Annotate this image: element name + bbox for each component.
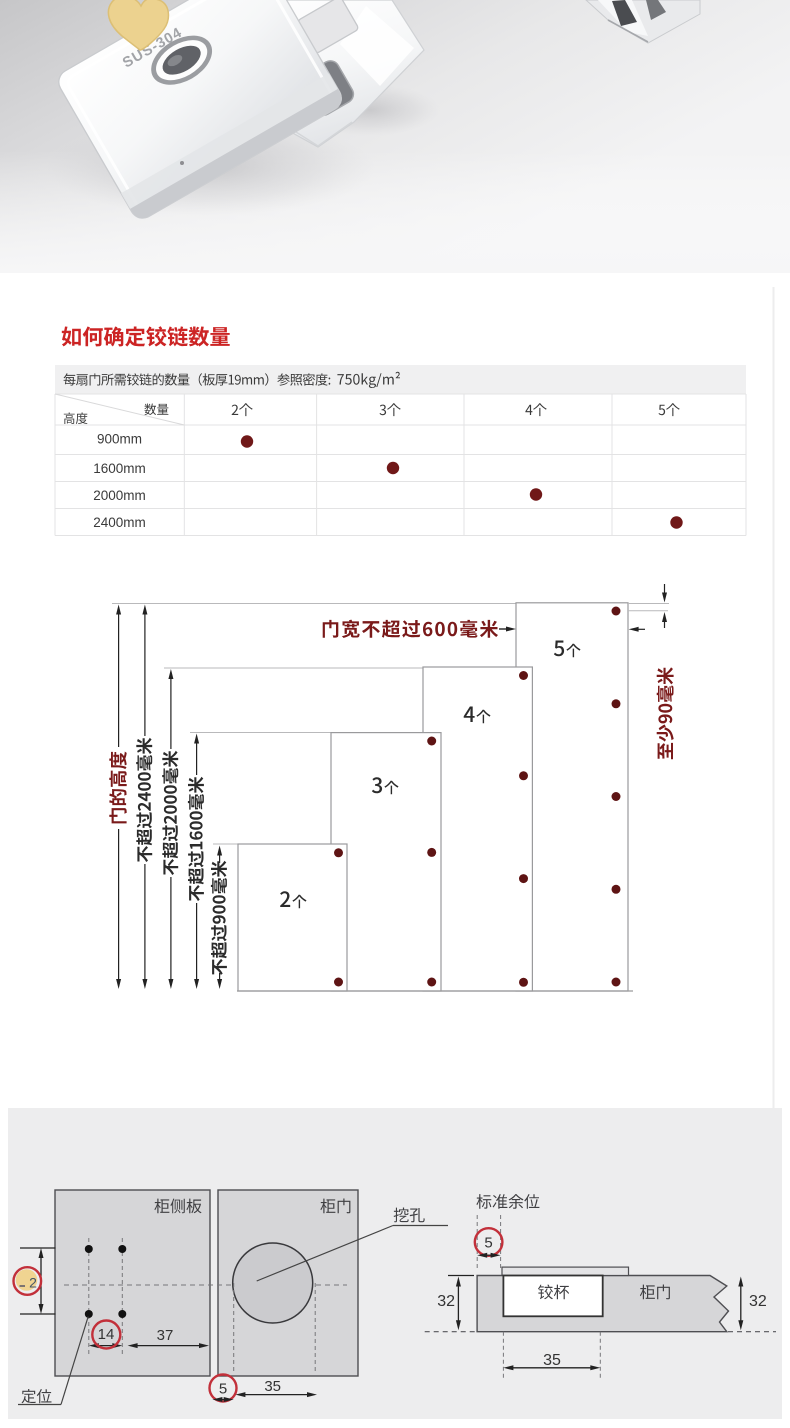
svg-text:2: 2 xyxy=(29,1275,37,1291)
svg-text:35: 35 xyxy=(543,1352,561,1369)
svg-text:5: 5 xyxy=(484,1235,492,1252)
svg-text:2000mm: 2000mm xyxy=(93,488,146,503)
svg-text:14: 14 xyxy=(98,1326,115,1343)
svg-text:1600mm: 1600mm xyxy=(93,461,146,476)
svg-text:35: 35 xyxy=(264,1378,281,1395)
svg-text:5: 5 xyxy=(219,1381,227,1398)
svg-text:900mm: 900mm xyxy=(97,432,142,447)
svg-text:32: 32 xyxy=(437,1293,455,1310)
svg-text:2400mm: 2400mm xyxy=(93,515,146,530)
svg-text:32: 32 xyxy=(749,1293,767,1310)
svg-text:37: 37 xyxy=(157,1327,174,1344)
